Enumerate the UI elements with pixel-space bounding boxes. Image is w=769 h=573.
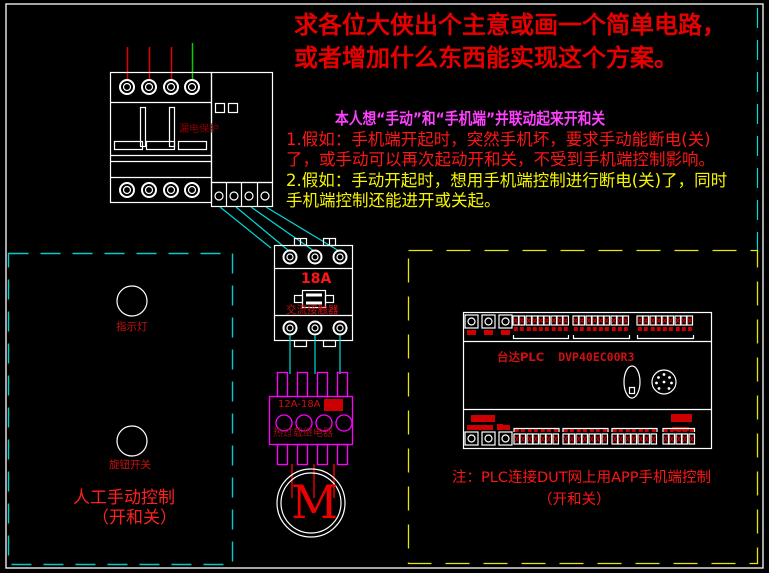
thermal-overload-relay <box>270 373 353 465</box>
breaker-toggle <box>170 108 175 147</box>
plc-usb-port <box>624 366 640 398</box>
plc-brand: 台达PLC <box>497 350 544 364</box>
relay-label: 热过载继电器 <box>273 428 333 440</box>
breaker-toggle <box>141 108 146 147</box>
plc-model: DVP40EC00R3 <box>558 350 634 364</box>
breaker-top-terminals <box>120 80 199 94</box>
plan-case1-line2: 了，或手动可以再次起动开和关，不受到手机端控制影响。 <box>286 151 715 170</box>
leakage-breaker <box>111 73 273 207</box>
manual-caption-line2: （开和关） <box>92 509 177 529</box>
contactor-top-terminals <box>284 251 347 264</box>
request-note-line1: 求各位大侠出个主意或画一个简单电路， <box>294 12 726 40</box>
indicator-light-label: 指示灯 <box>116 321 148 333</box>
knob-switch-symbol <box>117 426 147 456</box>
plc-round-connector <box>652 370 676 394</box>
plc-nameplate: 台达PLCDVP40EC00R3 <box>497 351 634 364</box>
plan-case1-line1: 1.假如：手机端开起时，突然手机坏，要求手动能断电(关) <box>286 131 711 150</box>
cad-drawing: 求各位大侠出个主意或画一个简单电路， 或者增加什么东西能实现这个方案。 本人想“… <box>0 0 769 573</box>
plc-bottom-output-terminals <box>514 428 695 444</box>
ac-contactor <box>275 239 353 347</box>
plc-top-power-terminals <box>465 315 512 335</box>
indicator-light-symbol <box>117 286 147 316</box>
plc-bottom-power-terminals <box>465 425 512 445</box>
motor-letter: M <box>291 476 331 529</box>
breaker-aux-terminal-block <box>212 183 273 207</box>
breaker-bottom-terminals <box>120 183 199 197</box>
breaker-side-module <box>212 73 273 183</box>
manual-caption-line1: 人工手动控制 <box>73 489 175 509</box>
plan-heading: 本人想“手动”和“手机端”并联动起来开和关 <box>335 110 605 128</box>
supply-wires <box>128 43 193 80</box>
knob-switch-label: 旋钮开关 <box>109 459 151 471</box>
relay-rating: 12A-18A <box>278 399 321 411</box>
breaker-to-contactor-wires <box>220 207 339 251</box>
contactor-rating: 18A <box>301 271 331 287</box>
plc-top-input-terminals <box>513 316 694 339</box>
plc-zone-border <box>409 251 758 564</box>
breaker-label: 漏电保护 <box>179 124 219 136</box>
plan-case2-line2: 手机端控制还能进开或关起。 <box>286 192 501 211</box>
plc-note-line1: 注：PLC连接DUT网上用APP手机端控制 <box>452 470 711 487</box>
request-note-line2: 或者增加什么东西能实现这个方案。 <box>294 45 678 73</box>
plc-device <box>464 313 712 449</box>
plc-note-line2: （开和关） <box>538 492 611 509</box>
contactor-label: 交流接触器 <box>286 304 339 316</box>
contactor-bottom-terminals <box>284 322 347 335</box>
plan-case2-line1: 2.假如：手动开起时，想用手机端控制进行断电(关)了，同时 <box>286 172 727 191</box>
relay-reset-button <box>324 399 343 411</box>
